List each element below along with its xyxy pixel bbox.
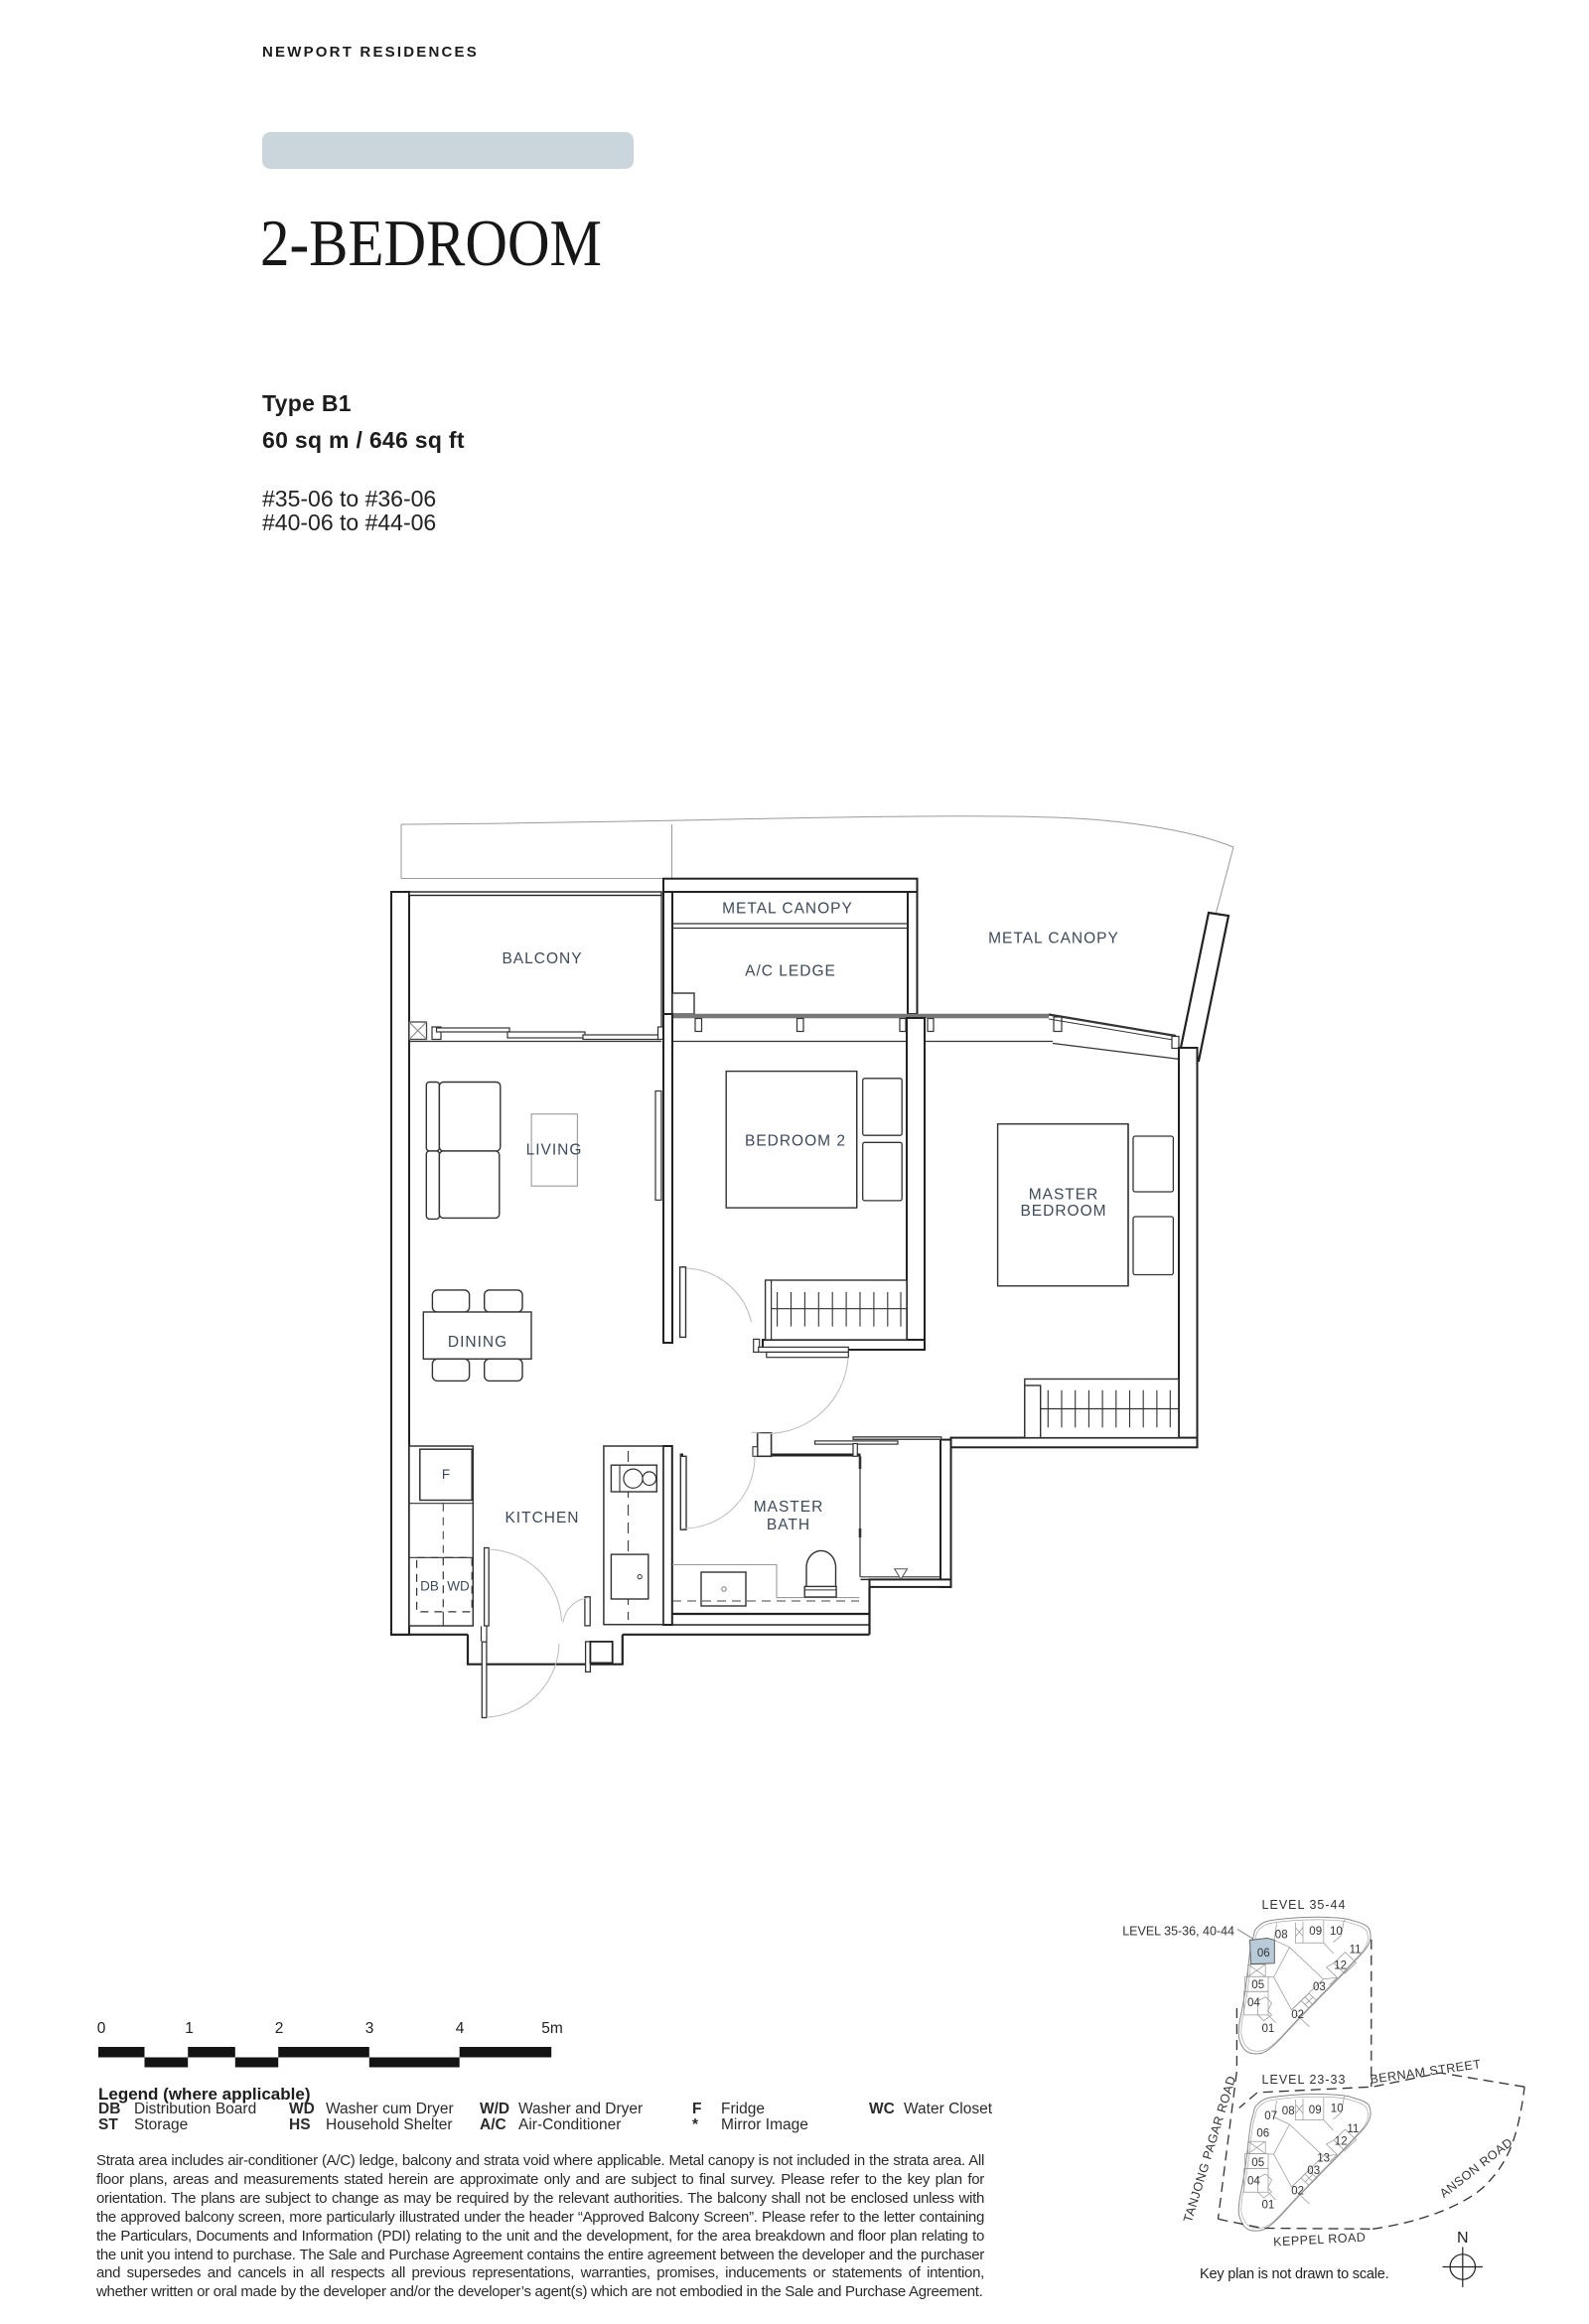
svg-text:12: 12 — [1334, 1961, 1347, 1972]
svg-text:02: 02 — [1291, 2186, 1304, 2198]
svg-text:LEVEL 35-44: LEVEL 35-44 — [1262, 1898, 1347, 1912]
svg-text:01: 01 — [1262, 2023, 1275, 2035]
svg-text:KITCHEN: KITCHEN — [505, 1510, 579, 1526]
svg-text:07: 07 — [1264, 2110, 1277, 2122]
svg-text:BERNAM STREET: BERNAM STREET — [1370, 2057, 1483, 2087]
svg-text:Key plan is not drawn to scale: Key plan is not drawn to scale. — [1200, 2266, 1388, 2282]
svg-text:02: 02 — [1291, 2009, 1304, 2021]
svg-text:3: 3 — [365, 2020, 374, 2037]
svg-text:09: 09 — [1309, 1926, 1322, 1938]
svg-text:KEPPEL ROAD: KEPPEL ROAD — [1273, 2231, 1367, 2250]
svg-text:04: 04 — [1247, 2176, 1260, 2188]
svg-text:05: 05 — [1251, 2157, 1264, 2169]
svg-text:BEDROOM 2: BEDROOM 2 — [745, 1133, 846, 1150]
svg-text:F: F — [442, 1467, 450, 1482]
svg-text:DINING: DINING — [448, 1334, 507, 1351]
svg-text:05: 05 — [1251, 1979, 1264, 1991]
svg-text:04: 04 — [1247, 1997, 1260, 2009]
svg-text:11: 11 — [1350, 1945, 1362, 1957]
svg-text:10: 10 — [1330, 1926, 1343, 1938]
svg-text:LIVING: LIVING — [526, 1142, 583, 1159]
svg-text:MASTER: MASTER — [1029, 1187, 1099, 1204]
svg-text:11: 11 — [1347, 2123, 1359, 2135]
svg-text:09: 09 — [1309, 2105, 1322, 2116]
svg-text:N: N — [1457, 2230, 1469, 2247]
svg-text:2: 2 — [275, 2020, 284, 2037]
svg-text:WD: WD — [447, 1579, 470, 1594]
svg-text:08: 08 — [1275, 1930, 1288, 1942]
svg-text:METAL CANOPY: METAL CANOPY — [722, 901, 853, 918]
svg-text:03: 03 — [1307, 2165, 1320, 2177]
svg-text:BATH: BATH — [767, 1517, 810, 1533]
svg-text:4: 4 — [456, 2020, 465, 2037]
svg-text:ANSON ROAD: ANSON ROAD — [1437, 2135, 1516, 2201]
svg-text:LEVEL 35-36, 40-44: LEVEL 35-36, 40-44 — [1122, 1925, 1234, 1939]
svg-text:1: 1 — [185, 2020, 194, 2037]
svg-text:08: 08 — [1282, 2106, 1295, 2117]
svg-text:MASTER: MASTER — [754, 1499, 824, 1516]
svg-text:TANJONG PAGAR ROAD: TANJONG PAGAR ROAD — [1181, 2074, 1238, 2224]
svg-text:5m: 5m — [541, 2020, 563, 2037]
svg-text:13: 13 — [1317, 2153, 1330, 2165]
svg-text:01: 01 — [1262, 2200, 1275, 2212]
svg-text:06: 06 — [1257, 1948, 1270, 1960]
svg-text:DB: DB — [420, 1579, 439, 1594]
svg-text:03: 03 — [1313, 1981, 1326, 1993]
svg-text:0: 0 — [97, 2020, 106, 2037]
svg-text:06: 06 — [1256, 2128, 1269, 2140]
svg-text:BALCONY: BALCONY — [502, 950, 582, 967]
svg-text:METAL CANOPY: METAL CANOPY — [988, 931, 1119, 947]
svg-text:10: 10 — [1331, 2104, 1344, 2115]
svg-text:12: 12 — [1335, 2136, 1348, 2148]
svg-text:A/C LEDGE: A/C LEDGE — [745, 963, 836, 980]
svg-text:LEVEL 23-33: LEVEL 23-33 — [1262, 2073, 1347, 2087]
svg-text:BEDROOM: BEDROOM — [1020, 1203, 1106, 1220]
